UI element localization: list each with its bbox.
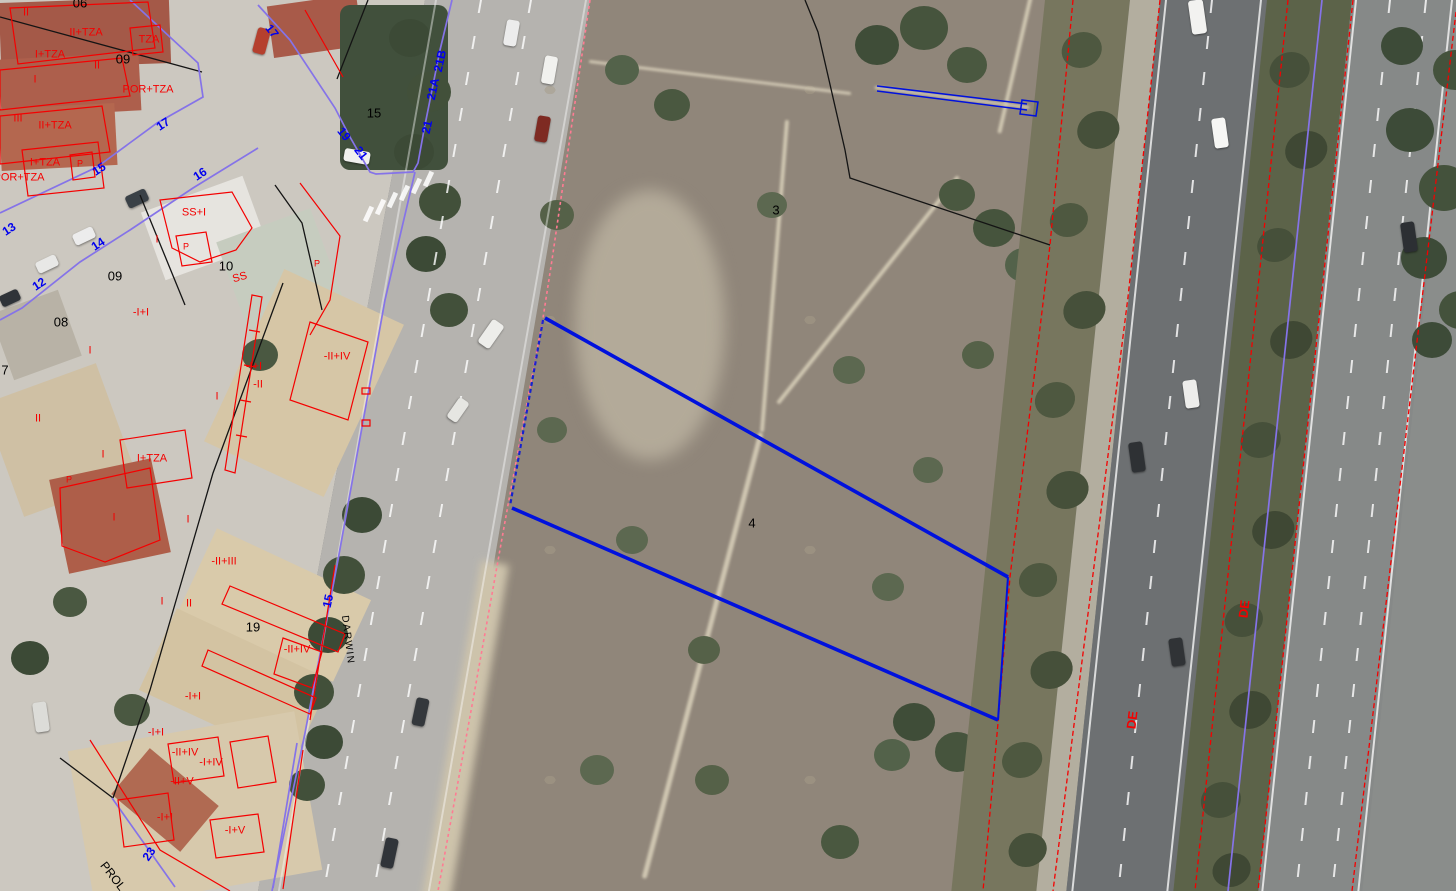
roof-block [0, 103, 118, 171]
vegetation [0, 0, 24, 20]
field-light-area [575, 190, 725, 460]
map-canvas[interactable]: IIII+TZATZAI+TZAIIPOR+TZAIIIIII+TZAI+TZA… [0, 0, 1456, 891]
